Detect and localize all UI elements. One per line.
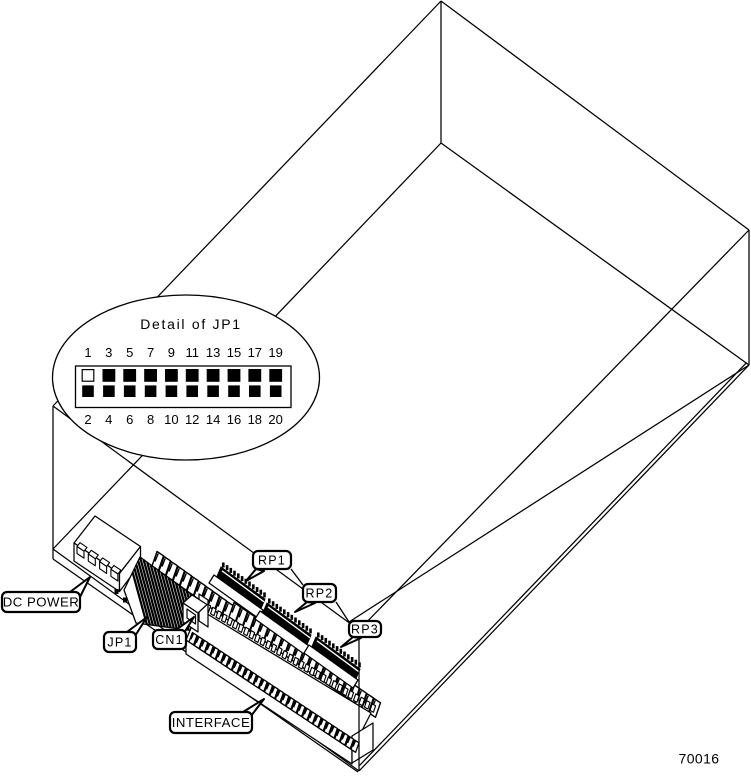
svg-text:70016: 70016	[679, 751, 720, 767]
svg-text:13: 13	[206, 345, 220, 360]
svg-text:JP1: JP1	[107, 636, 132, 650]
svg-text:1: 1	[84, 345, 91, 360]
svg-text:19: 19	[268, 345, 282, 360]
svg-text:RP3: RP3	[351, 623, 379, 637]
svg-text:11: 11	[185, 345, 199, 360]
svg-text:7: 7	[147, 345, 154, 360]
svg-text:DC POWER: DC POWER	[3, 595, 80, 610]
svg-text:12: 12	[185, 412, 199, 427]
svg-text:2: 2	[84, 412, 91, 427]
svg-text:15: 15	[227, 345, 241, 360]
svg-text:8: 8	[147, 412, 154, 427]
svg-text:Detail of JP1: Detail of JP1	[140, 316, 241, 332]
svg-text:9: 9	[168, 345, 175, 360]
svg-text:4: 4	[105, 412, 112, 427]
svg-text:CN1: CN1	[155, 633, 184, 647]
svg-text:6: 6	[126, 412, 133, 427]
svg-text:20: 20	[268, 412, 282, 427]
svg-text:18: 18	[248, 412, 262, 427]
svg-text:10: 10	[164, 412, 178, 427]
svg-text:3: 3	[105, 345, 112, 360]
svg-text:17: 17	[248, 345, 262, 360]
svg-text:16: 16	[227, 412, 241, 427]
svg-text:RP1: RP1	[258, 554, 286, 568]
svg-text:RP2: RP2	[306, 587, 334, 601]
svg-text:5: 5	[126, 345, 133, 360]
svg-text:INTERFACE: INTERFACE	[172, 715, 251, 730]
svg-text:14: 14	[206, 412, 220, 427]
